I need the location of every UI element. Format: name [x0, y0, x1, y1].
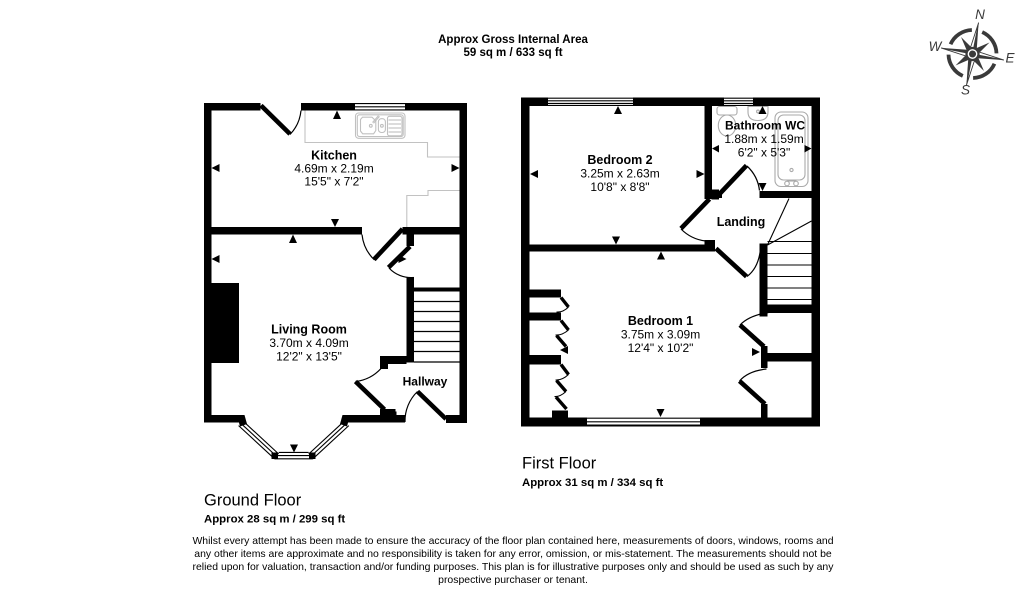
- svg-text:3.75m x 3.09m: 3.75m x 3.09m: [621, 328, 700, 342]
- svg-text:E: E: [1005, 51, 1015, 66]
- svg-text:Bedroom 2: Bedroom 2: [587, 153, 652, 167]
- svg-text:Approx Gross Internal Area: Approx Gross Internal Area: [438, 34, 588, 46]
- svg-text:15'5" x 7'2": 15'5" x 7'2": [304, 175, 363, 189]
- svg-text:Approx 31 sq m / 334 sq ft: Approx 31 sq m / 334 sq ft: [522, 477, 663, 489]
- svg-text:prospective purchaser or tenan: prospective purchaser or tenant.: [438, 575, 588, 586]
- svg-text:Approx 28 sq m / 299 sq ft: Approx 28 sq m / 299 sq ft: [204, 514, 345, 526]
- svg-text:Ground Floor: Ground Floor: [204, 492, 302, 510]
- svg-text:W: W: [929, 39, 943, 54]
- svg-text:Bathroom WC: Bathroom WC: [725, 119, 805, 133]
- svg-text:First Floor: First Floor: [522, 455, 597, 473]
- svg-text:6'2" x 5'3": 6'2" x 5'3": [738, 146, 790, 160]
- svg-text:Whilst every attempt has been: Whilst every attempt has been made to en…: [192, 536, 833, 547]
- svg-text:N: N: [975, 7, 985, 22]
- svg-text:4.69m x 2.19m: 4.69m x 2.19m: [294, 162, 373, 176]
- svg-text:relied upon for valuation, tra: relied upon for valuation, transaction a…: [193, 562, 835, 573]
- svg-text:S: S: [961, 83, 970, 98]
- svg-text:Living Room: Living Room: [271, 323, 347, 337]
- svg-text:Kitchen: Kitchen: [311, 149, 357, 163]
- svg-text:any other items are approximat: any other items are approximate and no r…: [194, 549, 832, 560]
- svg-text:59 sq m / 633 sq ft: 59 sq m / 633 sq ft: [463, 47, 562, 59]
- svg-text:12'2" x 13'5": 12'2" x 13'5": [276, 350, 342, 364]
- svg-text:1.88m x 1.59m: 1.88m x 1.59m: [724, 132, 803, 146]
- svg-text:3.25m x 2.63m: 3.25m x 2.63m: [580, 167, 659, 181]
- svg-text:10'8" x 8'8": 10'8" x 8'8": [590, 180, 649, 194]
- svg-text:Bedroom 1: Bedroom 1: [628, 314, 693, 328]
- svg-text:3.70m x 4.09m: 3.70m x 4.09m: [269, 336, 348, 350]
- svg-text:12'4" x 10'2": 12'4" x 10'2": [628, 341, 694, 355]
- svg-text:Landing: Landing: [717, 215, 766, 229]
- svg-text:Hallway: Hallway: [403, 375, 448, 389]
